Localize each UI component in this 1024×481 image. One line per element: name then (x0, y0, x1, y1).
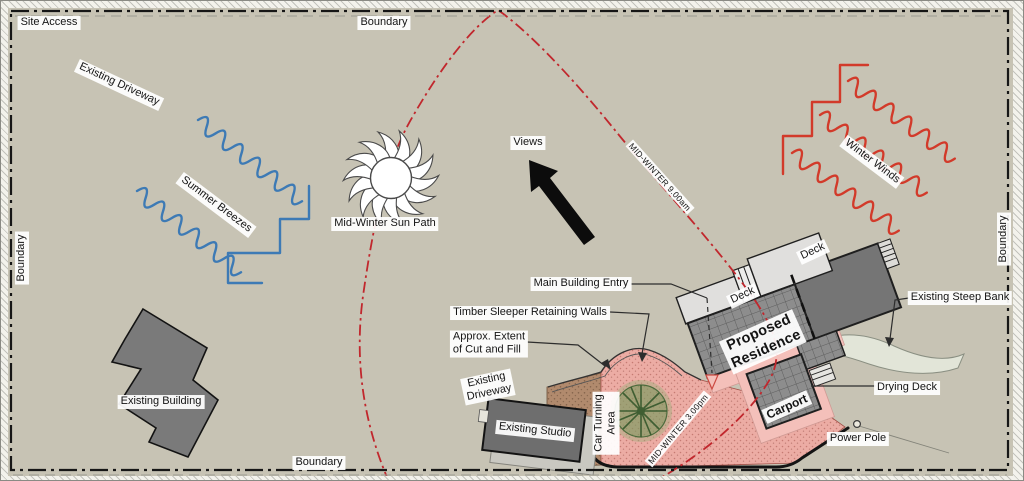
border-hatch-top (1, 1, 1024, 8)
views-label: Views (510, 136, 545, 150)
drying-deck-label: Drying Deck (874, 381, 940, 395)
site-access-label: Site Access (18, 16, 81, 30)
car-turning-area-label: Car Turning Area (593, 391, 620, 454)
sun-icon (343, 131, 438, 225)
power-pole-label: Power Pole (827, 432, 889, 446)
site-plan-drawing (1, 1, 1024, 481)
border-hatch-right (1013, 1, 1024, 481)
existing-building-shape (112, 309, 218, 457)
border-hatch-bottom (1, 476, 1024, 481)
mid-winter-sun-path-label: Mid-Winter Sun Path (331, 217, 438, 231)
approx-extent-label: Approx. Extent of Cut and Fill (450, 331, 528, 358)
winter-wind-lines (783, 65, 959, 237)
border-hatch-left (1, 1, 8, 481)
boundary-label-left: Boundary (15, 231, 29, 284)
boundary-label-bottom: Boundary (292, 456, 345, 470)
timber-sleeper-label: Timber Sleeper Retaining Walls (450, 306, 610, 320)
existing-building-label: Existing Building (118, 395, 205, 409)
boundary-label-right: Boundary (997, 212, 1011, 265)
summer-breeze-lines (132, 114, 309, 283)
views-arrow-icon (529, 160, 595, 245)
existing-steep-bank-label: Existing Steep Bank (908, 291, 1012, 305)
main-building-entry-label: Main Building Entry (531, 277, 632, 291)
power-pole-marker (854, 421, 861, 428)
boundary-label-top: Boundary (357, 16, 410, 30)
site-plan: Site Access Boundary Existing Driveway S… (0, 0, 1024, 481)
